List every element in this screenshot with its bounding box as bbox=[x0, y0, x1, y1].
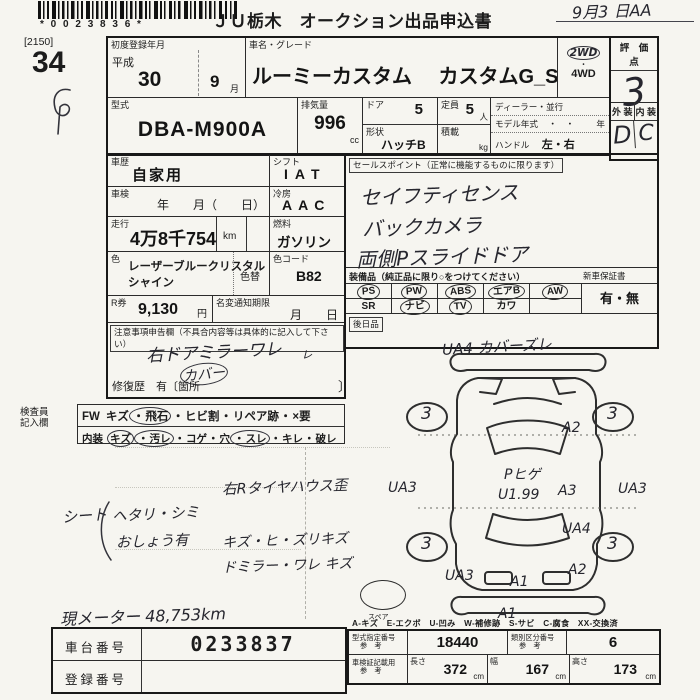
drive-type-cell: 2WD ・ 4WD bbox=[557, 37, 610, 98]
exterior-interior-cell: 外 装 内 装 D C bbox=[610, 102, 658, 160]
plate-number-row: 登録番号 bbox=[52, 660, 346, 693]
exterior-grade: D bbox=[610, 120, 635, 150]
size-reference-label: 車検証記載用参 考 bbox=[349, 655, 407, 675]
recycle-ticket-label: R券 bbox=[111, 298, 127, 308]
model-year-label: モデル年式 bbox=[495, 119, 538, 129]
warranty-value: 有・無 bbox=[600, 291, 639, 306]
handnote-scratch: キズ・ヒ・ズリキズ bbox=[222, 528, 349, 552]
equip-item-pw: PW bbox=[391, 283, 438, 299]
equipment-label: 装備品（純正品に限り○をつけてください） bbox=[349, 270, 525, 283]
type-approval-label-cell: 型式指定番号参 考 bbox=[348, 630, 408, 655]
mileage-km-divider bbox=[216, 217, 217, 251]
inspector-box: FWキズ飛石ヒビ割リペア跡×要 内装キズ汚レコゲ穴スレキレ破レ bbox=[77, 404, 345, 444]
equip-item-sr: SR bbox=[345, 298, 392, 314]
width-unit: cm bbox=[555, 672, 566, 681]
length-cell: 長さ 372 cm bbox=[407, 654, 488, 684]
notes-check-mark: ㇾ bbox=[300, 343, 313, 362]
inspection-value: 年 月（ 日） bbox=[157, 196, 265, 213]
size-label-cell: 車検証記載用参 考 bbox=[348, 654, 408, 684]
damage-a3-mid: A3 bbox=[558, 483, 576, 499]
chassis-number-label: 車台番号 bbox=[65, 637, 127, 656]
repair-history-bracket: 〕 bbox=[338, 376, 351, 395]
type-approval-value-cell: 18440 bbox=[407, 630, 508, 655]
warranty-value-cell: 有・無 bbox=[581, 283, 658, 314]
capacity-load-cell: 定員 5 人 積載 kg bbox=[437, 97, 491, 155]
wheel-rating-rear-right: 3 bbox=[607, 534, 618, 554]
page-title: ＪＵ栃木 オークション出品申込書 bbox=[212, 7, 492, 32]
era-label: 平成 bbox=[112, 54, 134, 70]
inspection-cell: 車検 年 月（ 日） bbox=[107, 186, 270, 217]
damage-ua4-right: UA4 bbox=[562, 521, 591, 537]
mileage-cell: 走行 4万8千754 km bbox=[107, 216, 270, 252]
height-unit: cm bbox=[645, 672, 656, 681]
height-value: 173 bbox=[614, 661, 637, 677]
equip-item-empty bbox=[529, 298, 582, 314]
displacement-label: 排気量 bbox=[298, 98, 362, 110]
shape-value: ハッチB bbox=[381, 136, 426, 153]
color-value-line2: シャイン bbox=[128, 274, 174, 290]
chassis-number-row: 車台番号 0233837 bbox=[52, 628, 346, 661]
fw-item-tobiishi: 飛石 bbox=[129, 407, 172, 425]
height-cell: 高さ 173 cm bbox=[569, 654, 660, 684]
displacement-cell: 排気量 996 cc bbox=[297, 97, 363, 155]
plate-number-label: 登録番号 bbox=[65, 669, 127, 688]
dealer-cell: ディーラー・並行 モデル年式 ・ ・ 年 ハンドル 左・右 bbox=[490, 97, 610, 155]
history-cell: 車歴 自家用 bbox=[107, 154, 270, 187]
color-code-label: 色コード bbox=[273, 254, 309, 264]
color-code-value: B82 bbox=[296, 268, 322, 284]
first-registration-label: 初度登録年月 bbox=[108, 38, 245, 50]
width-value: 167 bbox=[526, 661, 549, 677]
fw-item-required: ×要 bbox=[279, 411, 311, 423]
door-value: 5 bbox=[415, 101, 423, 118]
handle-value: 左・右 bbox=[542, 139, 575, 151]
mileage-value: 4万8千754 bbox=[130, 225, 216, 251]
repair-history-text: 修復歴 有〔箇所 〕 bbox=[112, 378, 200, 394]
int-item-yogore: 汚レ bbox=[134, 430, 174, 447]
fw-item-kizu: キズ bbox=[106, 411, 129, 423]
length-value: 372 bbox=[444, 661, 467, 677]
registration-year: 30 bbox=[138, 68, 161, 92]
interior-head: 内装 bbox=[82, 433, 103, 445]
damage-ua3-left: UA3 bbox=[388, 480, 417, 496]
ac-value: AAC bbox=[282, 197, 330, 213]
type-approval-label: 型式指定番号参 考 bbox=[349, 631, 407, 650]
width-label: 幅 bbox=[490, 657, 498, 666]
fw-head: FW bbox=[82, 411, 100, 423]
spare-tire-oval bbox=[360, 580, 406, 610]
int-item-ana: 穴 bbox=[207, 433, 230, 445]
car-name-cell: 車名・グレード ルーミーカスタム カスタムG_S bbox=[245, 37, 558, 98]
exterior-label: 外 装 bbox=[611, 103, 635, 120]
damage-a2-front: A2 bbox=[562, 420, 580, 436]
int-item-yabure: 破レ bbox=[303, 433, 337, 445]
inspection-label: 車検 bbox=[111, 189, 129, 199]
drive-4wd: 4WD bbox=[558, 68, 609, 80]
interior-grade: C bbox=[634, 120, 658, 149]
car-diagram: UA4 カバーズレ 3 3 3 3 A2 UA3 Pヒゲ U1.99 A3 UA… bbox=[390, 342, 665, 622]
rename-deadline-label: 名変通知期限 bbox=[216, 298, 270, 308]
interior-label: 内 装 bbox=[635, 103, 658, 120]
drive-dot: ・ bbox=[558, 61, 609, 68]
color-label: 色 bbox=[111, 254, 120, 264]
class-number-label-cell: 類別区分番号参 考 bbox=[507, 630, 567, 655]
inspector-label-line1: 検査員 bbox=[20, 407, 49, 418]
damage-a2-rear: A2 bbox=[568, 562, 586, 578]
displacement-value: 996 bbox=[298, 113, 362, 135]
barcode-digits: * 0 0 2 3 8 3 6 * bbox=[40, 19, 240, 30]
history-label: 車歴 bbox=[111, 157, 129, 167]
chassis-number-value: 0233837 bbox=[141, 632, 345, 656]
date-underline bbox=[556, 21, 694, 22]
mileage-sub-divider bbox=[246, 217, 247, 251]
sales-point-label: セールスポイント（正常に機能するものに限ります） bbox=[349, 158, 563, 173]
wheel-rating-front-left: 3 bbox=[421, 404, 432, 424]
car-grade: カスタムG_S bbox=[438, 66, 558, 88]
wheel-rating-front-right: 3 bbox=[607, 404, 618, 424]
equip-item-airbag: エアB bbox=[483, 283, 530, 299]
displacement-unit: cc bbox=[298, 135, 362, 145]
fw-item-repair: リペア跡 bbox=[219, 411, 279, 423]
equip-item-leather: カワ bbox=[483, 298, 530, 314]
door-label: ドア bbox=[366, 100, 384, 110]
recycle-ticket-unit: 円 bbox=[197, 305, 207, 320]
recycle-ticket-cell: R券 9,130 円 bbox=[107, 295, 213, 323]
history-value: 自家用 bbox=[132, 164, 183, 185]
model-code-label: 型式 bbox=[108, 98, 297, 110]
damage-ua3-right: UA3 bbox=[618, 481, 647, 497]
int-item-koge: コゲ bbox=[174, 433, 208, 445]
auction-sheet: * 0 0 2 3 8 3 6 * ＪＵ栃木 オークション出品申込書 9月3 日… bbox=[0, 0, 700, 700]
rename-deadline-value: 月 日 bbox=[290, 306, 338, 323]
load-unit: kg bbox=[479, 142, 488, 152]
fuel-label: 燃料 bbox=[273, 219, 291, 229]
int-item-kizu: キズ bbox=[107, 430, 134, 447]
later-items-label: 後日品 bbox=[349, 317, 383, 332]
equip-item-aw: AW bbox=[529, 283, 582, 299]
length-label: 長さ bbox=[410, 657, 426, 666]
model-year-unit: 年 bbox=[596, 118, 605, 130]
capacity-label: 定員 bbox=[441, 100, 459, 110]
inspector-fw-row: FWキズ飛石ヒビ割リペア跡×要 bbox=[78, 405, 344, 427]
color-change-label: 色替 bbox=[240, 268, 260, 283]
barcode bbox=[38, 1, 238, 19]
handle-label: ハンドル bbox=[495, 140, 529, 150]
handwritten-mark bbox=[48, 86, 76, 138]
inspector-interior-row: 内装キズ汚レコゲ穴スレキレ破レ bbox=[78, 427, 344, 449]
handnote-odometer: 現メーター 48,753km bbox=[60, 600, 227, 630]
model-year-dots: ・ ・ bbox=[548, 119, 574, 129]
sales-point-line2: バックカメラ bbox=[362, 209, 483, 242]
handnote-mirror: ドミラー・ワレ キズ bbox=[222, 553, 353, 578]
equip-item-ps: PS bbox=[345, 283, 392, 299]
inspector-label: 検査員 記入欄 bbox=[20, 407, 49, 429]
lot-number: 34 bbox=[32, 46, 65, 80]
sales-point-box: セールスポイント（正常に機能するものに限ります） セイフティセンス バックカメラ… bbox=[345, 154, 658, 268]
door-shape-cell: ドア 5 形状 ハッチB bbox=[362, 97, 438, 155]
fuel-value: ガソリン bbox=[277, 231, 331, 251]
wheel-rating-rear-left: 3 bbox=[421, 534, 432, 554]
int-item-kire: キレ bbox=[270, 433, 304, 445]
color-code-cell: 色コード B82 bbox=[269, 251, 345, 296]
score-label: 評 価 点 bbox=[611, 38, 657, 71]
height-label: 高さ bbox=[572, 657, 588, 666]
month-unit: 月 bbox=[230, 82, 239, 95]
ac-cell: 冷房 AAC bbox=[269, 186, 345, 217]
fuel-cell: 燃料 ガソリン bbox=[269, 216, 345, 252]
int-item-sure: スレ bbox=[230, 430, 270, 447]
score-cell: 評 価 点 3 bbox=[610, 37, 658, 103]
damage-a1-rear: A1 bbox=[510, 574, 528, 590]
damage-roof-line2: U1.99 bbox=[498, 487, 539, 503]
class-number-label: 類別区分番号参 考 bbox=[508, 631, 566, 650]
length-unit: cm bbox=[473, 672, 484, 681]
handnote-seat-detail1: ヘタリ・シミ bbox=[112, 501, 200, 527]
model-code-cell: 型式 DBA-M900A bbox=[107, 97, 298, 155]
inspector-label-line2: 記入欄 bbox=[20, 418, 49, 429]
color-cell: 色 レーザーブルークリスタル シャイン 色替 bbox=[107, 251, 270, 296]
class-number-value: 6 bbox=[567, 631, 659, 651]
sales-point-line1: セイフティセンス bbox=[360, 176, 519, 211]
guide-line-h1 bbox=[115, 447, 390, 448]
type-approval-value: 18440 bbox=[408, 631, 507, 651]
class-number-value-cell: 6 bbox=[566, 630, 660, 655]
car-name: ルーミーカスタム bbox=[252, 66, 412, 88]
fw-item-hibiware: ヒビ割 bbox=[171, 411, 219, 423]
width-cell: 幅 167 cm bbox=[487, 654, 570, 684]
recycle-ticket-value: 9,130 bbox=[138, 301, 178, 319]
model-code-value: DBA-M900A bbox=[108, 118, 297, 142]
shift-cell: シフト IAT bbox=[269, 154, 345, 187]
equip-item-tv: TV bbox=[437, 298, 484, 314]
car-name-label: 車名・グレード bbox=[246, 38, 557, 50]
handnote-seat-detail2: おしょう有 bbox=[116, 529, 189, 553]
equip-empty-label bbox=[551, 307, 561, 309]
equip-item-navi: ナビ bbox=[391, 298, 438, 314]
equip-item-abs: ABS bbox=[437, 283, 484, 299]
mileage-label: 走行 bbox=[111, 219, 129, 229]
damage-roof-line1: Pヒゲ bbox=[504, 464, 540, 484]
date-note: 9月3 日AA bbox=[572, 0, 652, 23]
warranty-label: 新車保証書 bbox=[583, 270, 626, 282]
capacity-value: 5 bbox=[466, 101, 474, 118]
first-registration-cell: 初度登録年月 平成 30 9 月 bbox=[107, 37, 246, 98]
handnote-tirehouse: 右Rタイヤハウス歪 bbox=[222, 474, 348, 499]
rename-deadline-cell: 名変通知期限 月 日 bbox=[212, 295, 345, 323]
color-change-divider bbox=[233, 252, 234, 295]
capacity-unit: 人 bbox=[479, 111, 488, 123]
shift-value: IAT bbox=[284, 166, 327, 182]
registration-month: 9 bbox=[210, 72, 219, 92]
mileage-unit: km bbox=[223, 231, 236, 242]
drive-2wd-circled: 2WD bbox=[567, 46, 601, 60]
notes-box: 注意事項申告欄（不具合内容等は具体的に記入して下さい） 右ドアミラーワレ ㇾ カ… bbox=[107, 322, 345, 398]
dealer-label: ディーラー・並行 bbox=[491, 98, 609, 116]
damage-ua3-rear-left: UA3 bbox=[445, 568, 474, 584]
damage-legend: A-キズ E-エクボ U-凹み W-補修跡 S-サビ C-腐食 XX-交換済 bbox=[352, 617, 618, 629]
load-label: 積載 bbox=[441, 127, 459, 137]
plate-col-divider bbox=[141, 661, 142, 692]
reg-divider bbox=[198, 50, 199, 96]
